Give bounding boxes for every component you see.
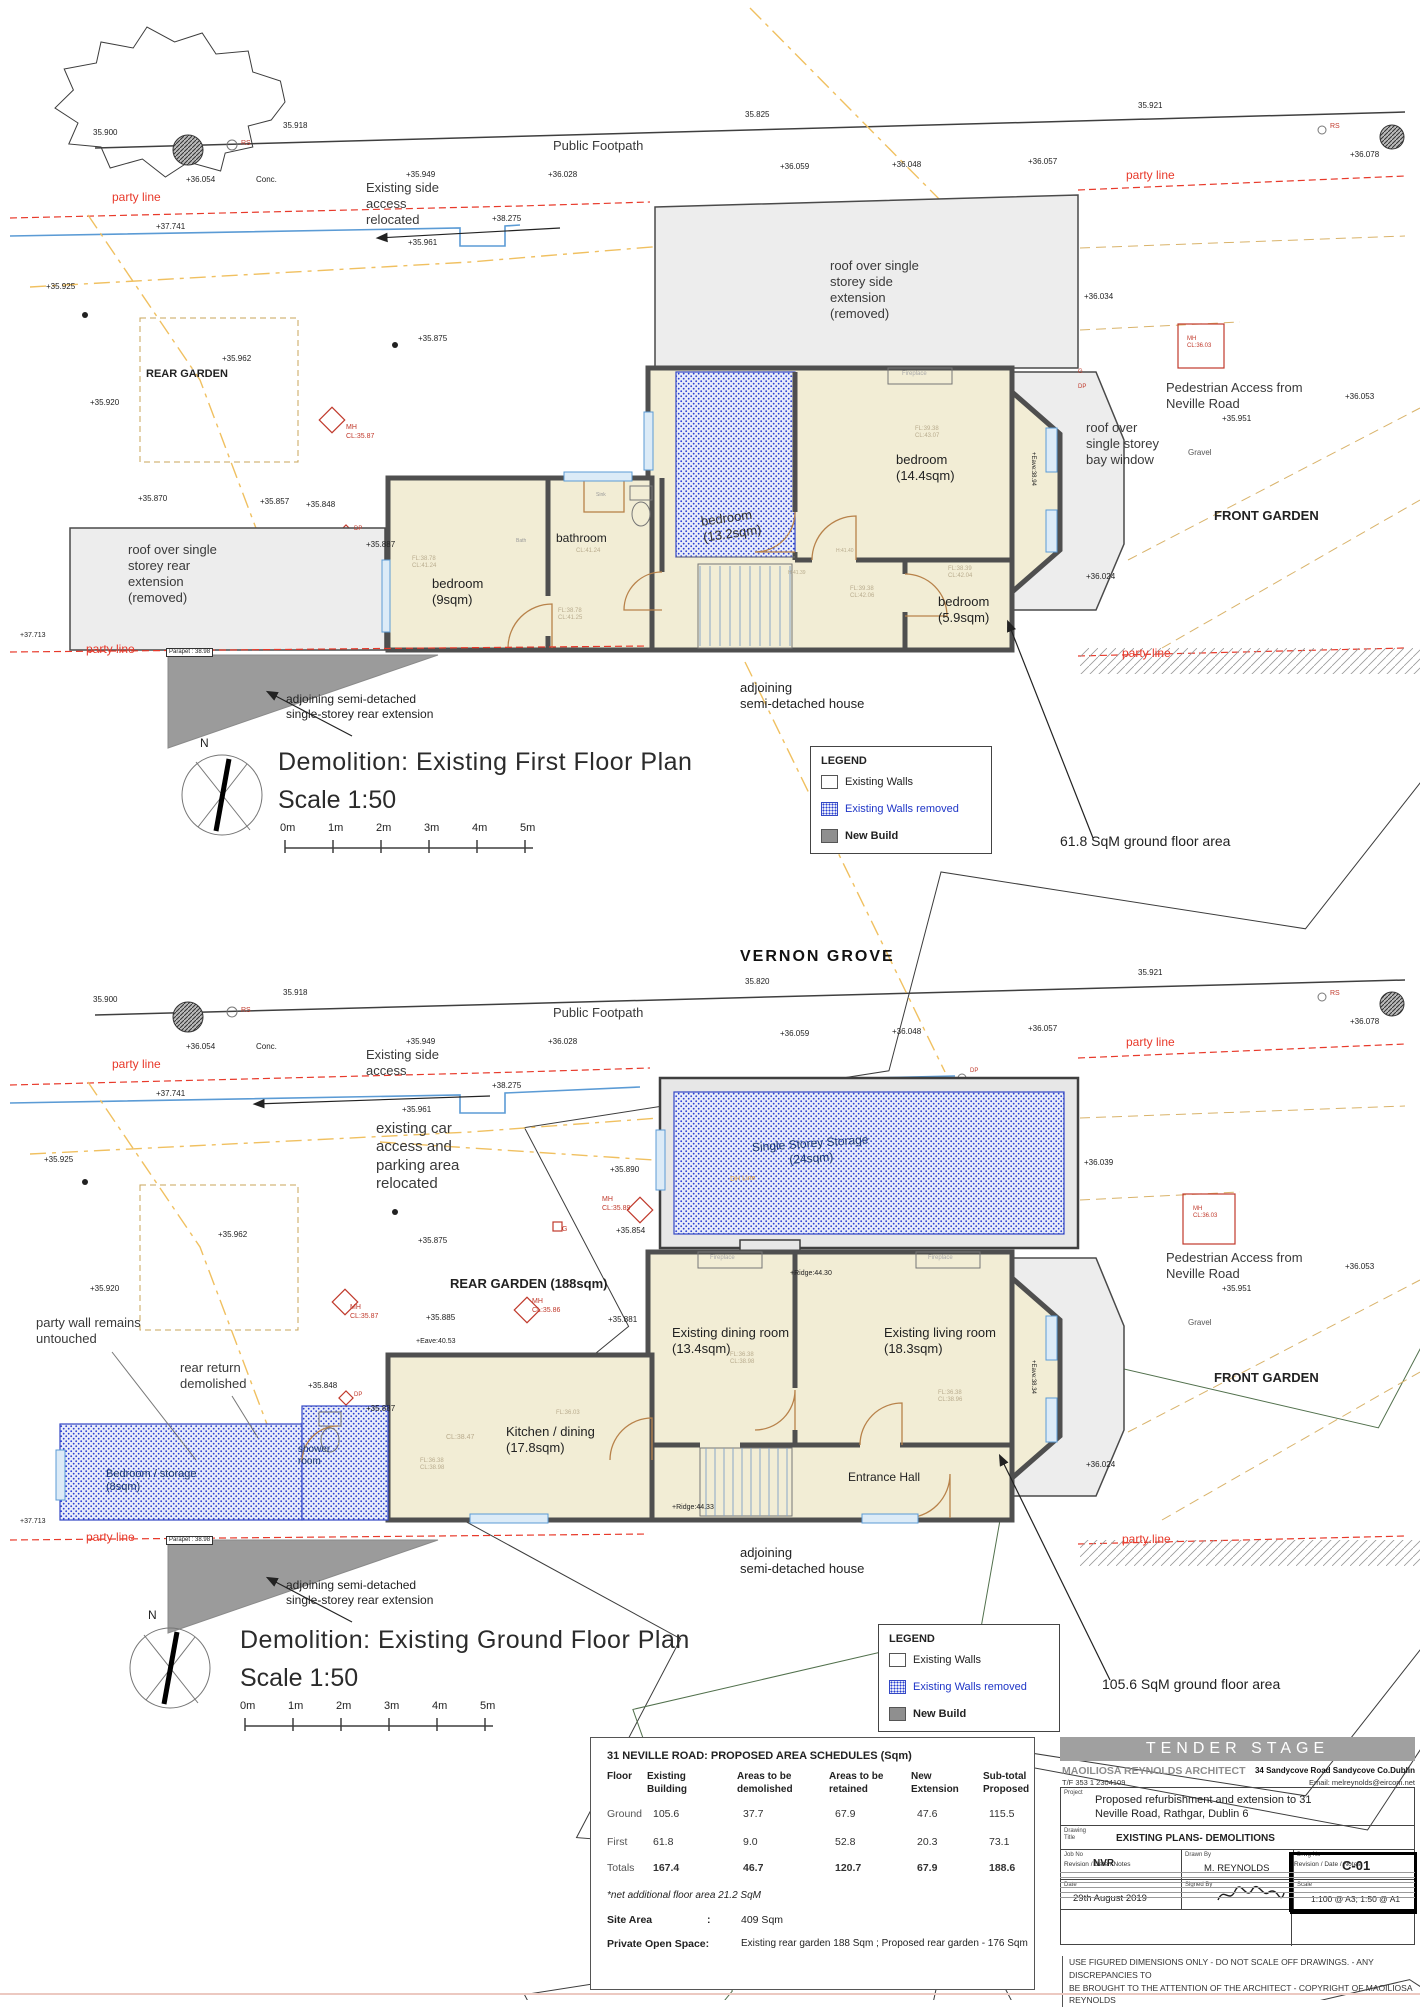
- rs-marker: RS: [241, 1007, 251, 1016]
- revision-line: [1290, 1872, 1415, 1873]
- open-space-value: Existing rear garden 188 Sqm ; Proposed …: [741, 1938, 1028, 1949]
- scalebar-label: 5m: [520, 822, 535, 834]
- first-floor-title-scale: Scale 1:50: [278, 786, 692, 815]
- revision-line: [1290, 1897, 1415, 1898]
- road-level: 35.918: [283, 988, 307, 998]
- spot-level: +36.054: [186, 1042, 215, 1052]
- rear-return-note: rear return demolished: [180, 1360, 247, 1392]
- spot-level: +35.875: [418, 1236, 447, 1246]
- spot-level: +35.887: [366, 540, 395, 550]
- first-floor-title-line1: Demolition: Existing First Floor Plan: [278, 748, 692, 777]
- side-access-note: Existing side access relocated: [366, 180, 439, 228]
- legend-swatch-removed-icon: [889, 1680, 906, 1694]
- spot-level: +36.057: [1028, 157, 1057, 167]
- legend-label: Existing Walls: [913, 1654, 981, 1666]
- drawing-title-label: Drawing Title: [1064, 1828, 1086, 1841]
- project-label: Project: [1064, 1790, 1083, 1797]
- eave-label: +Eave:38.94: [1029, 452, 1036, 486]
- schedule-column-header: New Extension: [911, 1770, 959, 1796]
- parapet-label: Parapet : 38.98: [166, 1536, 213, 1545]
- spot-level: +35.890: [610, 1165, 639, 1175]
- date-value: 29th August 2019: [1073, 1893, 1147, 1904]
- manhole-label: MH CL:35.86: [532, 1298, 560, 1315]
- area-schedule-note: *net additional floor area 21.2 SqM: [607, 1890, 761, 1901]
- schedule-cell: 67.9: [835, 1808, 855, 1820]
- manhole-label: MH CL:35.87: [346, 424, 374, 441]
- spot-level: +35.949: [406, 170, 435, 180]
- schedule-cell: 67.9: [917, 1862, 937, 1874]
- manhole-label: MH CL:35.89: [602, 1196, 630, 1213]
- schedule-cell: Totals: [607, 1862, 634, 1874]
- spot-level: +36.028: [548, 1037, 577, 1047]
- spot-level: +35.949: [406, 1037, 435, 1047]
- rear-garden-label: REAR GARDEN: [146, 368, 228, 381]
- party-line-label: party line: [1122, 1532, 1171, 1547]
- legend-label: Existing Walls removed: [913, 1681, 1027, 1693]
- legend-first-floor: LEGENDExisting WallsExisting Walls remov…: [810, 746, 992, 854]
- legend-label: New Build: [845, 830, 898, 842]
- pedestrian-access-note: Pedestrian Access from Neville Road: [1166, 380, 1303, 412]
- spot-level: +35.961: [402, 1105, 431, 1115]
- scale-value: 1:100 @ A3; 1:50 @ A1: [1311, 1894, 1400, 1904]
- pedestrian-access-note: Pedestrian Access from Neville Road: [1166, 1250, 1303, 1282]
- spot-level: +36.048: [892, 160, 921, 170]
- spot-level: +35.920: [90, 398, 119, 408]
- room-shower: shower room: [298, 1444, 330, 1468]
- g-marker: G: [1078, 369, 1083, 376]
- party-line-label: party line: [1126, 168, 1175, 183]
- revision-line: [1060, 1897, 1290, 1898]
- schedule-cell: First: [607, 1836, 627, 1848]
- first-floor-area-note: 61.8 SqM ground floor area: [1060, 833, 1230, 849]
- site-area-label: Site Area: [607, 1914, 652, 1926]
- room-datum: FL:39.38 CL:42.06: [850, 586, 874, 601]
- revision-header: Revision / Date / Notes: [1064, 1861, 1130, 1868]
- spot-level: +36.034: [1084, 292, 1113, 302]
- room-datum: CL:41.24: [576, 548, 600, 555]
- room-bedroom-9: bedroom (9sqm): [432, 576, 483, 608]
- scalebar-label: 3m: [424, 822, 439, 834]
- spot-level: +36.059: [780, 162, 809, 172]
- spot-level: +37.741: [156, 222, 185, 232]
- g-marker: G: [562, 1226, 567, 1235]
- room-datum: CL:38.47: [446, 1434, 474, 1443]
- schedule-cell: 188.6: [989, 1862, 1015, 1874]
- schedule-cell: 47.6: [917, 1808, 937, 1820]
- parapet-label: Parapet : 38.98: [166, 648, 213, 657]
- room-bedroom-144: bedroom (14.4sqm): [896, 452, 955, 484]
- schedule-cell: 37.7: [743, 1808, 763, 1820]
- spot-level: +36.078: [1350, 1017, 1379, 1027]
- revision-line: [1060, 1892, 1290, 1893]
- manhole-label: MH CL:36.03: [1193, 1206, 1217, 1221]
- scalebar-label: 5m: [480, 1700, 495, 1712]
- schedule-cell: 73.1: [989, 1836, 1009, 1848]
- scalebar-label: 0m: [280, 822, 295, 834]
- room-datum: FL:36.38 CL:38.96: [938, 1390, 962, 1405]
- conc-note: Conc.: [256, 175, 277, 185]
- spot-level: +35.951: [1222, 414, 1251, 424]
- party-line-label: party line: [86, 1530, 135, 1545]
- legend-title: LEGEND: [889, 1633, 1049, 1645]
- room-datum: H:41.40: [836, 548, 854, 554]
- scalebar-ground-floor: 0m1m2m3m4m5m: [240, 1700, 500, 1714]
- ground-floor-title: Demolition: Existing Ground Floor Plan S…: [240, 1626, 690, 1693]
- revision-line: [1290, 1882, 1415, 1883]
- room-bathroom: bathroom: [556, 531, 607, 546]
- legend-item-removed: Existing Walls removed: [821, 802, 981, 816]
- scalebar-label: 1m: [328, 822, 343, 834]
- road-level: 35.921: [1138, 968, 1162, 978]
- room-living: Existing living room (18.3sqm): [884, 1325, 996, 1357]
- spot-level: +35.885: [426, 1313, 455, 1323]
- gravel-label: Gravel: [1188, 1318, 1212, 1328]
- roof-side-note: roof over single storey side extension (…: [830, 258, 919, 321]
- architect-email: Email: melreynolds@eircom.net: [1309, 1778, 1415, 1787]
- spot-level: +37.713: [20, 1518, 46, 1527]
- spot-level: +35.951: [1222, 1284, 1251, 1294]
- site-area-colon: :: [707, 1914, 711, 1926]
- architect-name: MAOILIOSA REYNOLDS ARCHITECT: [1062, 1765, 1246, 1777]
- dp-marker: DP: [354, 1392, 362, 1399]
- area-schedule-title: 31 NEVILLE ROAD: PROPOSED AREA SCHEDULES…: [607, 1750, 912, 1762]
- scalebar-label: 4m: [472, 822, 487, 834]
- scalebar-label: 0m: [240, 1700, 255, 1712]
- spot-level: +36.078: [1350, 150, 1379, 160]
- ground-floor-area-note: 105.6 SqM ground floor area: [1102, 1676, 1280, 1692]
- road-level: 35.921: [1138, 101, 1162, 111]
- scalebar-label: 3m: [384, 1700, 399, 1712]
- spot-level: +35.870: [138, 494, 167, 504]
- ground-floor-title-scale: Scale 1:50: [240, 1664, 690, 1693]
- compass-north: N: [200, 736, 209, 751]
- legend-title: LEGEND: [821, 755, 981, 767]
- party-line-label: party line: [1122, 646, 1171, 661]
- legend-item-new: New Build: [889, 1707, 1049, 1721]
- legend-item-existing: Existing Walls: [821, 775, 981, 789]
- spot-level: +35.848: [306, 500, 335, 510]
- legend-item-existing: Existing Walls: [889, 1653, 1049, 1667]
- schedule-cell: 52.8: [835, 1836, 855, 1848]
- street-name: VERNON GROVE: [740, 948, 895, 966]
- revision-line: [1060, 1887, 1290, 1888]
- scalebar-label: 2m: [336, 1700, 351, 1712]
- ground-floor-title-line1: Demolition: Existing Ground Floor Plan: [240, 1626, 690, 1655]
- adjoining-extension-note: adjoining semi-detached single-storey re…: [286, 1578, 433, 1607]
- rs-marker: RS: [1330, 123, 1340, 132]
- manhole-label: MH CL:35.87: [350, 1304, 378, 1321]
- side-access-note: Existing side access: [366, 1047, 439, 1079]
- spot-level: +35.848: [308, 1381, 337, 1391]
- first-floor-plan-geometry: [10, 8, 1420, 2000]
- schedule-column-header: Areas to be retained: [829, 1770, 883, 1796]
- spot-level: +35.887: [366, 1404, 395, 1414]
- ridge-label: +Ridge:44.30: [790, 1270, 832, 1279]
- compass-north: N: [148, 1608, 157, 1623]
- room-datum: FL:36.38 CL:38.98: [420, 1458, 444, 1473]
- legend-ground-floor: LEGENDExisting WallsExisting Walls remov…: [878, 1624, 1060, 1732]
- front-garden-label: FRONT GARDEN: [1214, 508, 1319, 524]
- first-floor-title: Demolition: Existing First Floor Plan Sc…: [278, 748, 692, 815]
- room-datum: H:41.39: [788, 570, 806, 576]
- scalebar-label: 4m: [432, 1700, 447, 1712]
- spot-level: +37.741: [156, 1089, 185, 1099]
- rs-marker: RS: [241, 140, 251, 149]
- room-kitchen: Kitchen / dining (17.8sqm): [506, 1424, 595, 1456]
- legend-swatch-new-icon: [821, 829, 838, 843]
- legend-swatch-new-icon: [889, 1707, 906, 1721]
- revision-line: [1290, 1877, 1415, 1878]
- car-access-note: existing car access and parking area rel…: [376, 1120, 459, 1193]
- legend-swatch-existing-icon: [821, 775, 838, 789]
- conc-note: Conc.: [256, 1042, 277, 1052]
- drawing-sheet: .blk{stroke:#3f3f3f;fill:none;stroke-wid…: [0, 0, 1420, 2000]
- road-level: 35.825: [745, 110, 769, 120]
- spot-level: +36.039: [1084, 1158, 1113, 1168]
- revision-line: [1290, 1892, 1415, 1893]
- bath-label: Bath: [516, 538, 526, 544]
- legend-label: Existing Walls: [845, 776, 913, 788]
- public-footpath: Public Footpath: [553, 1005, 643, 1021]
- eave-label: +Eave:40.53: [416, 1338, 456, 1347]
- revision-line: [1060, 1882, 1290, 1883]
- spot-level: +37.713: [20, 632, 46, 641]
- drawn-by-label: Drawn By: [1185, 1852, 1211, 1859]
- schedule-cell: 120.7: [835, 1862, 861, 1874]
- dp-marker: DP: [970, 1068, 978, 1075]
- spot-level: +35.962: [222, 354, 251, 364]
- area-schedule-table: 31 NEVILLE ROAD: PROPOSED AREA SCHEDULES…: [590, 1737, 1035, 1990]
- revision-line: [1290, 1887, 1415, 1888]
- room-bed-storage: Bedroom / storage (8sqm): [106, 1468, 197, 1495]
- road-level: 35.900: [93, 128, 117, 138]
- party-wall-note: party wall remains untouched: [36, 1315, 141, 1347]
- disclaimer: USE FIGURED DIMENSIONS ONLY - DO NOT SCA…: [1062, 1956, 1420, 2007]
- room-datum: FL:38.78 CL:41.24: [412, 556, 436, 571]
- drwg-no-label: Drwg No: [1297, 1852, 1320, 1859]
- schedule-cell: 115.5: [989, 1808, 1015, 1820]
- spot-level: +35.857: [260, 497, 289, 507]
- road-level: 35.820: [745, 977, 769, 987]
- spot-level: +35.961: [408, 238, 437, 248]
- revision-header: Revision / Date / Notes: [1294, 1861, 1360, 1868]
- spot-level: +36.048: [892, 1027, 921, 1037]
- roof-bay-note: roof over single storey bay window: [1086, 420, 1159, 468]
- open-space-label: Private Open Space:: [607, 1938, 709, 1950]
- schedule-cell: 46.7: [743, 1862, 763, 1874]
- adjoining-extension-note: adjoining semi-detached single-storey re…: [286, 692, 433, 721]
- drawing-title-value: EXISTING PLANS- DEMOLITIONS: [1116, 1833, 1275, 1844]
- legend-swatch-existing-icon: [889, 1653, 906, 1667]
- legend-swatch-removed-icon: [821, 802, 838, 816]
- spot-level: +36.054: [186, 175, 215, 185]
- public-footpath: Public Footpath: [553, 138, 643, 154]
- spot-level: +38.275: [492, 214, 521, 224]
- schedule-column-header: Floor: [607, 1770, 632, 1783]
- spot-level: +35.925: [46, 282, 75, 292]
- roof-rear-note: roof over single storey rear extension (…: [128, 542, 217, 605]
- dh-line-label: DH Line: [730, 1175, 756, 1185]
- scalebar-first-floor: 0m1m2m3m4m5m: [280, 822, 540, 836]
- room-datum: FL:39.38 CL:43.07: [915, 426, 939, 441]
- road-level: 35.900: [93, 995, 117, 1005]
- legend-label: New Build: [913, 1708, 966, 1720]
- legend-label: Existing Walls removed: [845, 803, 959, 815]
- fireplace-label: Fireplace: [710, 1255, 735, 1262]
- ridge-label: +Ridge:44.33: [672, 1504, 714, 1513]
- party-line-label: party line: [1126, 1035, 1175, 1050]
- spot-level: +35.881: [608, 1315, 637, 1325]
- title-block: TENDER STAGE MAOILIOSA REYNOLDS ARCHITEC…: [1060, 1737, 1415, 1945]
- legend-item-new: New Build: [821, 829, 981, 843]
- dp-marker: DP: [1078, 384, 1086, 391]
- spot-level: +35.962: [218, 1230, 247, 1240]
- scalebar-label: 2m: [376, 822, 391, 834]
- disclaimer-line1: USE FIGURED DIMENSIONS ONLY - DO NOT SCA…: [1069, 1956, 1420, 1982]
- eave-label: +Eave:38.34: [1029, 1360, 1036, 1394]
- schedule-cell: 167.4: [653, 1862, 679, 1874]
- fireplace-label: Fireplace: [902, 371, 927, 378]
- revision-line: [1060, 1872, 1290, 1873]
- schedule-cell: 105.6: [653, 1808, 679, 1820]
- front-garden-label: FRONT GARDEN: [1214, 1370, 1319, 1386]
- architect-address: 34 Sandycove Road Sandycove Co.Dublin: [1255, 1766, 1415, 1775]
- road-level: 35.918: [283, 121, 307, 131]
- site-area-value: 409 Sqm: [741, 1914, 783, 1926]
- spot-level: +35.920: [90, 1284, 119, 1294]
- architect-phone: T/F 353 1 2304109: [1062, 1778, 1125, 1787]
- party-line-label: party line: [86, 642, 135, 657]
- spot-level: +36.059: [780, 1029, 809, 1039]
- adjoining-house-note: adjoining semi-detached house: [740, 680, 864, 712]
- schedule-cell: 20.3: [917, 1836, 937, 1848]
- party-line-label: party line: [112, 190, 161, 205]
- spot-level: +36.053: [1345, 1262, 1374, 1272]
- schedule-column-header: Areas to be demolished: [737, 1770, 793, 1796]
- fireplace-label: Fireplace: [928, 1255, 953, 1262]
- rear-garden-label: REAR GARDEN (188sqm): [450, 1276, 607, 1292]
- party-line-label: party line: [112, 1057, 161, 1072]
- room-datum: FL:36.03: [556, 1410, 580, 1417]
- site-plan-linework: .blk{stroke:#3f3f3f;fill:none;stroke-wid…: [0, 0, 1420, 2000]
- spot-level: +38.275: [492, 1081, 521, 1091]
- sink-label: Sink: [596, 492, 606, 498]
- scalebar-label: 1m: [288, 1700, 303, 1712]
- spot-level: +36.024: [1086, 572, 1115, 582]
- room-datum: FL:36.38 CL:38.98: [730, 1352, 754, 1367]
- schedule-column-header: Sub-total Proposed: [983, 1770, 1029, 1796]
- dp-marker: DP: [354, 526, 362, 533]
- spot-level: +35.925: [44, 1155, 73, 1165]
- gravel-label: Gravel: [1188, 448, 1212, 458]
- spot-level: +35.854: [616, 1226, 645, 1236]
- schedule-column-header: Existing Building: [647, 1770, 687, 1796]
- room-hall: Entrance Hall: [848, 1470, 920, 1485]
- spot-level: +36.057: [1028, 1024, 1057, 1034]
- job-no-label: Job No: [1064, 1852, 1083, 1859]
- room-datum: FL:38.39 CL:42.04: [948, 566, 972, 581]
- project-value: Proposed refurbishment and extension to …: [1095, 1793, 1311, 1822]
- schedule-cell: 61.8: [653, 1836, 673, 1848]
- schedule-cell: 9.0: [743, 1836, 758, 1848]
- stage-banner: TENDER STAGE: [1060, 1737, 1415, 1761]
- spot-level: +35.875: [418, 334, 447, 344]
- rs-marker: RS: [1330, 990, 1340, 999]
- legend-item-removed: Existing Walls removed: [889, 1680, 1049, 1694]
- adjoining-house-note: adjoining semi-detached house: [740, 1545, 864, 1577]
- spot-level: +36.028: [548, 170, 577, 180]
- room-bedroom-59: bedroom (5.9sqm): [938, 594, 989, 626]
- revision-line: [1060, 1877, 1290, 1878]
- scan-edge-line: [0, 1993, 1420, 1995]
- room-datum: FL:38.78 CL:41.25: [558, 608, 582, 623]
- spot-level: +36.024: [1086, 1460, 1115, 1470]
- spot-level: +36.053: [1345, 392, 1374, 402]
- manhole-label: MH CL:36.03: [1187, 336, 1211, 351]
- schedule-cell: Ground: [607, 1808, 642, 1820]
